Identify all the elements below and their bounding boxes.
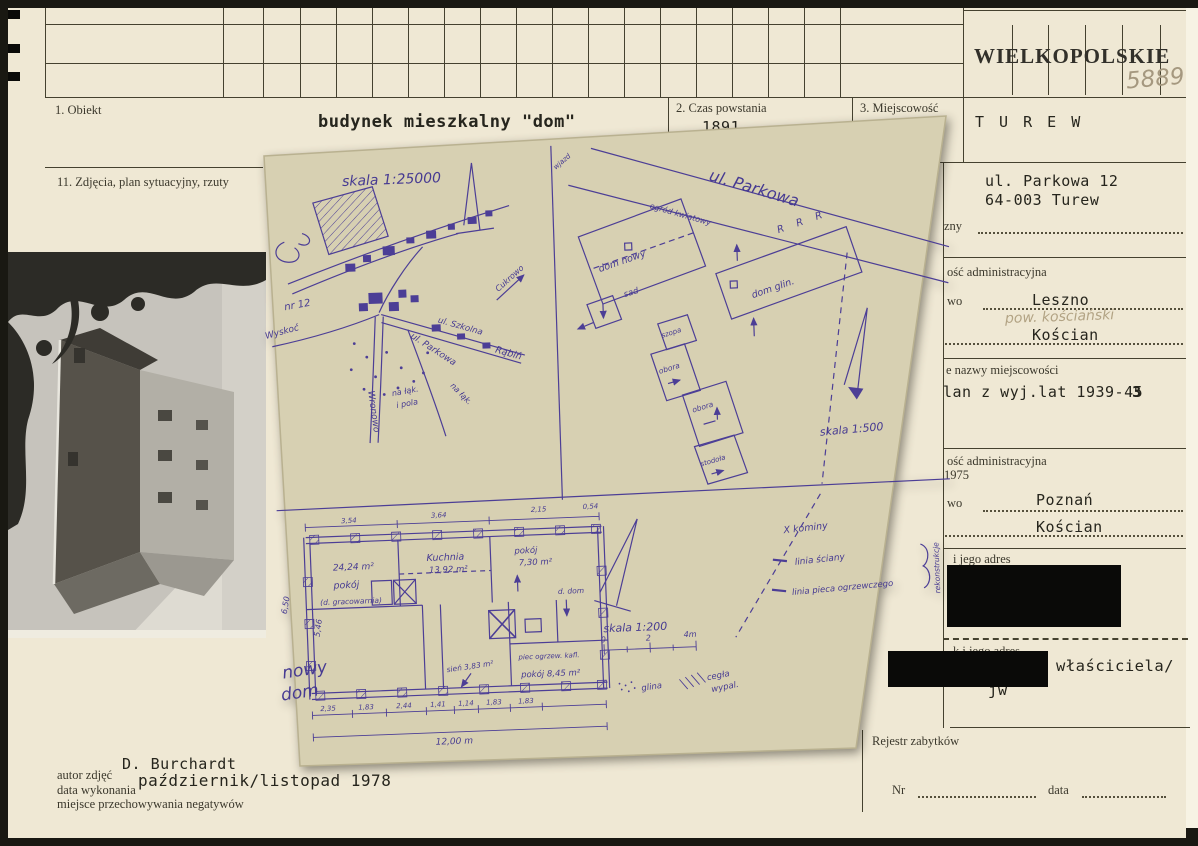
- legend-brace: [920, 544, 930, 588]
- value-koscian-old: Kościan: [1032, 326, 1099, 344]
- small-arrow: [566, 600, 567, 616]
- section-divider: [943, 448, 1186, 449]
- grid-line: [45, 63, 963, 64]
- floor-room2-area: 7,30 m²: [519, 557, 553, 568]
- small-arrow: [603, 304, 604, 318]
- value-koscian-new: Kościan: [1036, 518, 1103, 536]
- label-nr: Nr: [892, 783, 905, 798]
- grid-line: [480, 8, 481, 97]
- field-label-obiekt: 1. Obiekt: [55, 103, 102, 118]
- edge-mark: [8, 10, 20, 19]
- small-arrow: [517, 576, 518, 592]
- photo-border: [8, 630, 266, 638]
- grid-line: [372, 8, 373, 97]
- grid-line: [444, 8, 445, 97]
- scale-bar-4: 4m: [684, 630, 697, 639]
- dotted-line: [978, 232, 1183, 234]
- section-divider: [943, 257, 1186, 258]
- grid-line: [552, 8, 553, 97]
- dim-bot-2: 2,44: [396, 702, 412, 711]
- grid-line: [223, 8, 224, 97]
- address-line2: 64-003 Turew: [985, 191, 1099, 209]
- scanned-heritage-card: WIELKOPOLSKIE 5889 1. Obiekt budynek mie…: [0, 0, 1198, 846]
- value-leszno: Leszno: [1032, 291, 1089, 309]
- dim-left-0: 6,50: [280, 596, 292, 615]
- voivodeship-stamp: WIELKOPOLSKIE: [974, 44, 1170, 69]
- dim-bot-0: 2,35: [320, 705, 336, 714]
- grid-line: [336, 8, 337, 97]
- grid-line: [696, 8, 697, 97]
- edge-mark: [8, 44, 20, 53]
- label-autor: autor zdjęć: [57, 768, 112, 783]
- scale-bar-2: 2: [646, 633, 651, 642]
- label-data: data: [1048, 783, 1069, 798]
- value-owner: właściciela/: [1056, 657, 1174, 675]
- grid-line: [516, 8, 517, 97]
- dim-top-0: 3,54: [341, 517, 357, 526]
- grid-line: [300, 8, 301, 97]
- section-divider: [950, 727, 1190, 728]
- dim-bot-6: 1,83: [518, 697, 534, 706]
- photo-building: [8, 252, 266, 638]
- value-poznan: Poznań: [1036, 491, 1093, 509]
- grid-line: [588, 8, 589, 97]
- dim-bot-1: 1,83: [358, 703, 374, 712]
- dim-total: 12,00 m: [435, 736, 473, 747]
- value-names: lan z wyj.lat 1939-453: [943, 383, 1142, 401]
- floor-kitchen-area: 13,92 m²: [429, 564, 469, 576]
- dotted-line: [1082, 796, 1166, 798]
- legend-scale: skala 1:200: [603, 620, 667, 635]
- address-line1: ul. Parkowa 12: [985, 172, 1118, 190]
- floor-kitchen-name: Kuchnia: [426, 552, 464, 564]
- dashed-divider: [943, 638, 1188, 640]
- grid-line: [45, 24, 963, 25]
- grid-line: [624, 8, 625, 97]
- dim-bot-3: 1,41: [430, 700, 446, 709]
- dim-bot-4: 1,14: [458, 699, 474, 708]
- dim-top-3: 0,54: [583, 502, 599, 511]
- redaction-box: [888, 651, 1048, 687]
- value-names-overstrike: 3: [1132, 383, 1142, 401]
- section-divider: [45, 167, 263, 168]
- label-admin-old: ość administracyjna: [947, 265, 1047, 280]
- floor-room1-name: pokój: [332, 580, 360, 592]
- section-divider: [943, 358, 1186, 359]
- section-divider: [933, 162, 1186, 163]
- floor-room1-area: 24,24 m²: [333, 562, 375, 574]
- field-value-miejscowosc: T U R E W: [975, 113, 1083, 131]
- floor-room3: pokój 8,45 m²: [520, 667, 581, 680]
- grid-line: [660, 8, 661, 97]
- grid-line: [963, 10, 1186, 11]
- field-label-zdjecia: 11. Zdjęcia, plan sytuacyjny, rzuty: [57, 175, 229, 190]
- label-data-wyk: data wykonania: [57, 783, 136, 798]
- edge-mark: [8, 72, 20, 81]
- grid-line: [804, 8, 805, 97]
- dim-top-2: 2,15: [531, 505, 547, 514]
- floor-room2-name: pokój: [513, 545, 538, 557]
- grid-line: [840, 8, 841, 97]
- value-names-text: lan z wyj.lat 1939-45: [943, 383, 1143, 401]
- floor-ddom: d. dom: [558, 586, 585, 596]
- label-names: e nazwy miejscowości: [946, 363, 1058, 378]
- grid-line: [732, 8, 733, 97]
- section-divider: [943, 548, 1186, 549]
- label-admin-new: ość administracyjna: [947, 454, 1047, 469]
- label-negatywy: miejsce przechowywania negatywów: [57, 797, 244, 812]
- small-arrow: [754, 318, 755, 336]
- grid-line: [768, 8, 769, 97]
- grid-line: [45, 97, 1186, 98]
- redaction-box: [947, 565, 1121, 627]
- pencil-number: 5889: [1125, 63, 1186, 94]
- legend-rekonstrukcja: rekonstrukcje: [931, 542, 942, 594]
- dim-top-1: 3,64: [431, 511, 447, 520]
- dotted-line: [918, 796, 1036, 798]
- grid-line: [408, 8, 409, 97]
- small-arrow: [737, 245, 738, 261]
- paper-edge: [1186, 8, 1198, 828]
- grid-line: [263, 8, 264, 97]
- grid-line: [963, 8, 964, 162]
- grid-line: [45, 8, 46, 97]
- dotted-line: [983, 510, 1183, 512]
- dim-bot-5: 1,83: [486, 698, 502, 707]
- scale-bar-0: 0: [601, 635, 606, 644]
- plan-sheet: skala 1:25000: [256, 106, 956, 774]
